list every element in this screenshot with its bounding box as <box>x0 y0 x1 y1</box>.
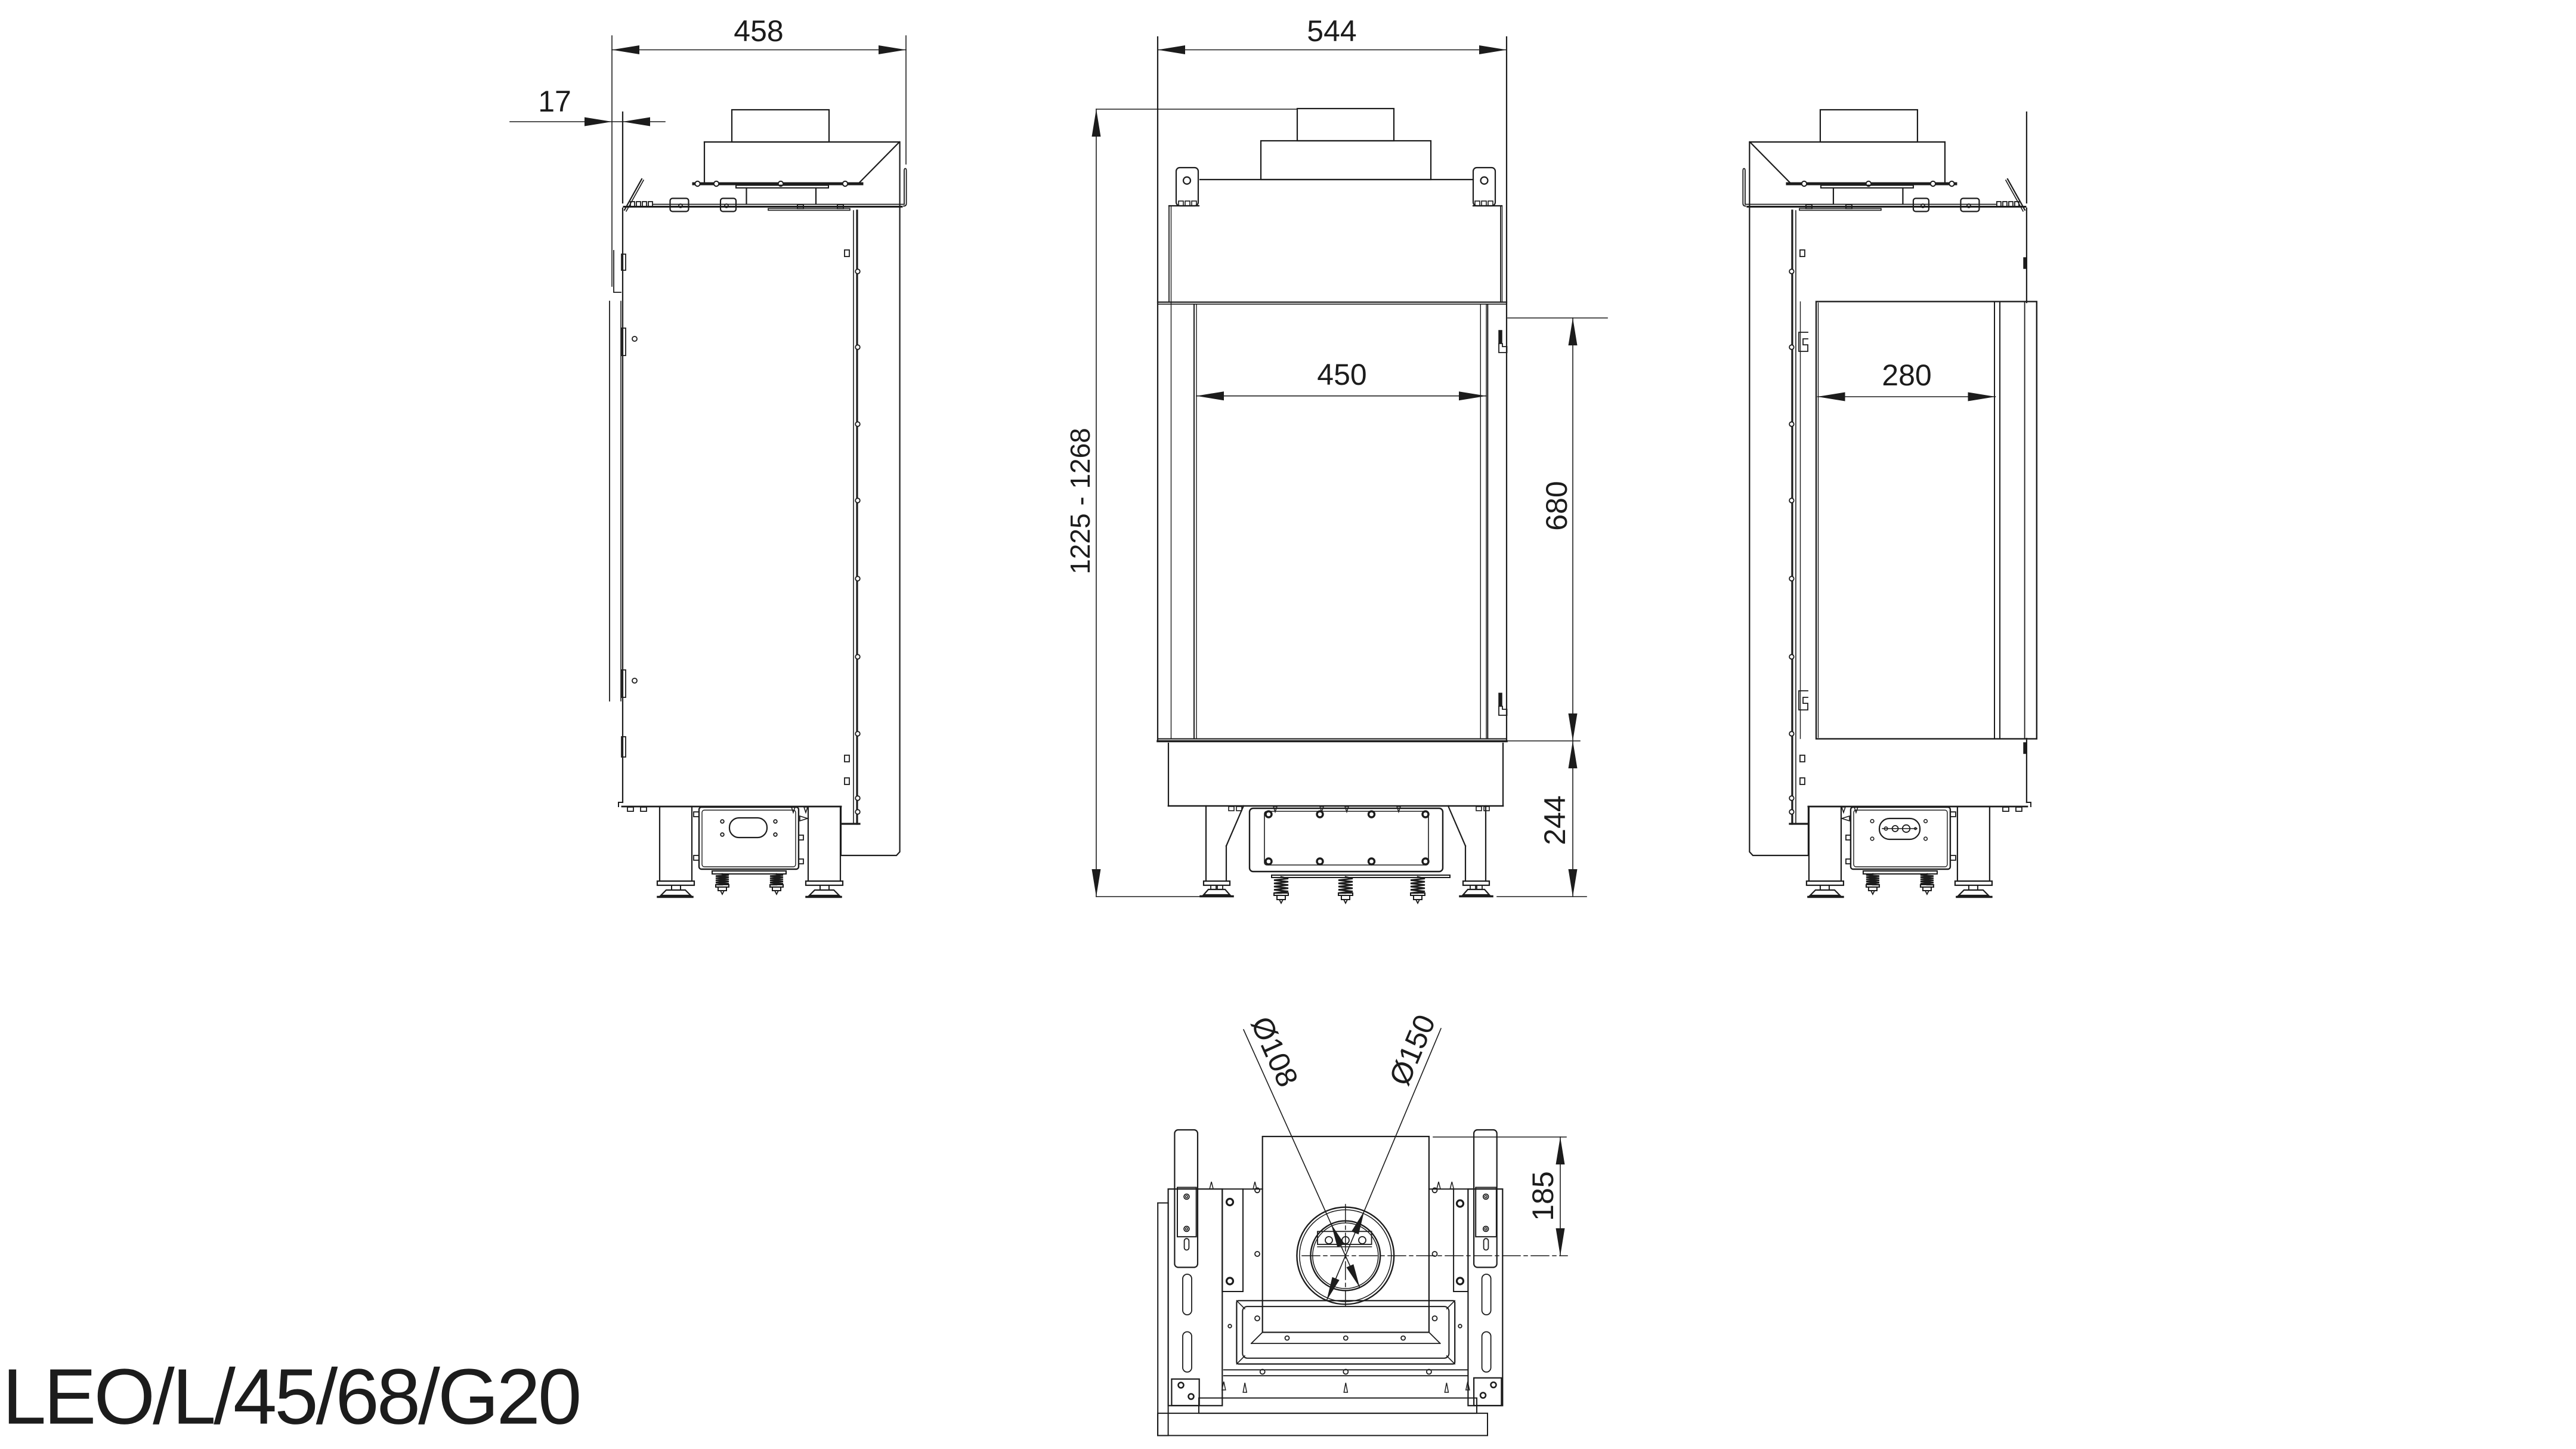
svg-text:LEO/L/45/68/G20: LEO/L/45/68/G20 <box>2 1353 579 1441</box>
svg-text:185: 185 <box>1526 1171 1560 1221</box>
svg-text:244: 244 <box>1538 795 1572 845</box>
svg-text:17: 17 <box>538 85 571 118</box>
svg-text:450: 450 <box>1317 358 1366 391</box>
svg-text:1225 - 1268: 1225 - 1268 <box>1065 428 1096 574</box>
svg-text:544: 544 <box>1307 14 1356 48</box>
svg-text:458: 458 <box>734 14 783 48</box>
svg-text:280: 280 <box>1882 359 1931 392</box>
svg-text:680: 680 <box>1540 481 1573 530</box>
